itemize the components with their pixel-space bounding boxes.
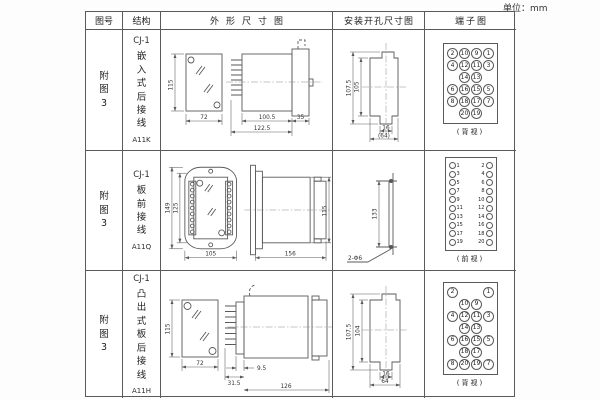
- terminal-circle: 4: [447, 311, 458, 322]
- terminal-circle: 6: [447, 335, 458, 346]
- fig-no-cell-a11h: 附图3: [86, 271, 123, 398]
- terminal-circle: 14: [459, 323, 470, 334]
- structure-code: A11K: [132, 136, 150, 144]
- dim-total-width: (64): [378, 134, 390, 140]
- terminal-number: 6: [480, 180, 485, 186]
- terminal-view-label: (前视): [457, 254, 484, 264]
- install-drawing-a11q: 133 2-Φ6: [334, 151, 424, 271]
- install-drawing-a11k: 107.5 105 16 (64): [334, 30, 424, 150]
- cutout-profile: [362, 286, 408, 380]
- terminal-circle: 20: [459, 108, 470, 119]
- model-label: CJ-1: [133, 274, 150, 284]
- terminal-circle: 8: [447, 96, 458, 107]
- dim-front-width: 72: [200, 115, 208, 121]
- dim-outer-height: 107.5: [346, 323, 352, 340]
- dimensions: 107.5 105 16 (64): [346, 52, 398, 142]
- dimensions: 133 2-Φ6: [348, 181, 379, 262]
- terminal-circle: 4: [447, 60, 458, 71]
- terminal-grid-front-view: 1234567891011121314151617181920: [445, 157, 497, 251]
- terminal-spacer: [447, 347, 458, 358]
- terminal-number: 3: [456, 171, 461, 177]
- terminal-circle: 13: [471, 72, 482, 83]
- holes-callout: 2-Φ6: [348, 256, 362, 262]
- structure-cell-a11k: CJ-1 嵌入式后接线 A11K: [123, 30, 161, 151]
- terminal-spacer: [483, 72, 494, 83]
- terminal-hole: [486, 239, 493, 246]
- outline-cell-a11q: 149 125 105 156 115: [161, 151, 333, 271]
- terminal-number: 9: [456, 197, 461, 203]
- terminal-circle: 11: [471, 60, 482, 71]
- terminal-circle: 19: [471, 359, 482, 370]
- terminal-grid-back-view: 2109141211314136161558181772019: [443, 43, 498, 124]
- terminal-hole: [449, 171, 456, 178]
- dim-total-length: 122.5: [253, 126, 270, 132]
- terminal-circle: 7: [483, 96, 494, 107]
- terminal-circle: 15: [471, 84, 482, 95]
- terminal-number: 15: [456, 222, 464, 228]
- structure-code: A11Q: [132, 243, 151, 251]
- dim-outer-height: 107.5: [346, 79, 352, 96]
- terminal-circle: 16: [459, 84, 470, 95]
- terminal-circle: 12: [459, 311, 470, 322]
- terminal-circle: 5: [483, 84, 494, 95]
- terminal-hole: [486, 213, 493, 220]
- dim-inner-height: 105: [354, 81, 360, 92]
- outline-drawing-a11h: 115 72 9.5 31.5 126: [162, 272, 332, 398]
- terminal-number: 5: [456, 180, 461, 186]
- terminal-circle: 9: [471, 48, 482, 59]
- dim-front-height: 115: [165, 323, 171, 334]
- cutout-profile: [362, 43, 406, 134]
- dim-flange: 35: [296, 115, 304, 121]
- terminal-number: 7: [456, 188, 461, 194]
- terminal-number: 18: [477, 231, 485, 237]
- terminal-number: 19: [456, 239, 464, 245]
- terminal-hole: [449, 162, 456, 169]
- dimensions: 115 72 9.5 31.5 126: [165, 300, 329, 393]
- structure-code: A11H: [132, 387, 151, 395]
- structure-cell-a11h: CJ-1 凸出式板后接线 A11H: [123, 271, 161, 398]
- install-cell-a11k: 107.5 105 16 (64): [333, 30, 425, 151]
- dim-side-height: 115: [323, 205, 329, 216]
- terminal-circle: 17: [471, 347, 482, 358]
- side-view: [225, 285, 332, 360]
- terminal-grid-back-view: 2110941211314136161551817820197: [443, 282, 498, 375]
- fig-no-label: 附图3: [99, 70, 110, 110]
- fig-no-label: 附图3: [99, 190, 110, 230]
- terminal-circle: 9: [471, 299, 482, 310]
- fig-no-label: 附图3: [99, 314, 110, 354]
- terminal-circle: 11: [471, 311, 482, 322]
- dim-body-length: 126: [280, 384, 291, 390]
- dim-hole-pitch: 133: [372, 208, 378, 219]
- terminal-number: 13: [456, 214, 464, 220]
- terminal-circle: 1: [483, 287, 494, 298]
- dim-total-width: 64: [381, 379, 389, 385]
- outline-cell-a11h: 115 72 9.5 31.5 126: [161, 271, 333, 398]
- terminal-view-label: (背视): [457, 378, 484, 388]
- terminal-view-label: (背视): [457, 127, 484, 137]
- terminal-spacer: [447, 299, 458, 310]
- terminal-number: 1: [456, 163, 461, 169]
- model-label: CJ-1: [133, 170, 150, 180]
- terminal-hole: [486, 171, 493, 178]
- terminal-circle: 16: [459, 335, 470, 346]
- terminal-number: 2: [480, 163, 485, 169]
- terminal-circle: 13: [471, 323, 482, 334]
- terminal-hole: [486, 162, 493, 169]
- side-view: [226, 40, 323, 116]
- install-cell-a11q: 133 2-Φ6: [333, 151, 425, 271]
- fig-no-cell-a11k: 附图3: [86, 30, 123, 151]
- terminal-hole: [449, 239, 456, 246]
- spec-table: 图号 结构 外形尺寸图 安装开孔尺寸图 端子图 附图3 CJ-1 嵌入式后接线 …: [85, 11, 515, 397]
- structure-label: 凸出式板后接线: [136, 288, 147, 382]
- terminal-circle: 2: [447, 48, 458, 59]
- header-install: 安装开孔尺寸图: [333, 12, 425, 30]
- front-view: [185, 167, 237, 249]
- terminal-number: 11: [456, 205, 464, 211]
- terminal-circle: 14: [459, 72, 470, 83]
- terminal-number: 16: [477, 222, 485, 228]
- front-view: [182, 300, 218, 357]
- terminal-circle: 12: [459, 60, 470, 71]
- terminal-circle: 19: [471, 108, 482, 119]
- structure-label: 板前接线: [136, 184, 147, 238]
- terminal-hole: [486, 188, 493, 195]
- dimensions: 107.5 104 16 64: [346, 294, 400, 388]
- outline-drawing-a11k: 115 72 100.5 35 122.5: [162, 30, 332, 150]
- terminal-hole: [486, 230, 493, 237]
- dim-pin-section: 31.5: [227, 381, 240, 387]
- header-fig-no: 图号: [86, 12, 123, 30]
- terminal-circle: 1: [483, 48, 494, 59]
- terminal-number: 8: [480, 188, 485, 194]
- terminal-spacer: [483, 108, 494, 119]
- install-drawing-a11h: 107.5 104 16 64: [334, 272, 424, 398]
- terminal-hole: [486, 179, 493, 186]
- terminal-spacer: [483, 323, 494, 334]
- terminal-spacer: [483, 299, 494, 310]
- terminal-number: 14: [477, 214, 485, 220]
- dim-slot-width: 16: [382, 371, 390, 377]
- terminal-strip-circles: [190, 182, 231, 233]
- terminal-hole: [449, 222, 456, 229]
- dim-inner-height: 104: [355, 325, 361, 336]
- dim-body-length: 100.5: [258, 115, 275, 121]
- terminal-circle: 10: [459, 299, 470, 310]
- terminal-number: 4: [480, 171, 485, 177]
- structure-label: 嵌入式后接线: [136, 50, 147, 131]
- terminal-spacer: [483, 347, 494, 358]
- terminal-number: 17: [456, 231, 464, 237]
- terminal-spacer: [447, 108, 458, 119]
- terminal-number: 10: [477, 197, 485, 203]
- header-outline: 外形尺寸图: [161, 12, 333, 30]
- terminal-spacer: [459, 287, 470, 298]
- terminal-circle: 20: [459, 359, 470, 370]
- terminal-circle: 5: [483, 335, 494, 346]
- header-terminal: 端子图: [425, 12, 516, 30]
- terminal-hole: [449, 188, 456, 195]
- terminal-number: 12: [477, 205, 485, 211]
- datasheet-page: { "unit_label": "单位：mm", "line_color": "…: [0, 0, 600, 400]
- outline-drawing-a11q: 149 125 105 156 115: [161, 151, 332, 271]
- terminal-circle: 15: [471, 335, 482, 346]
- terminal-circle: 18: [459, 96, 470, 107]
- structure-cell-a11q: CJ-1 板前接线 A11Q: [123, 151, 161, 271]
- dim-front-width: 72: [196, 361, 204, 367]
- terminal-cell-a11q: 1234567891011121314151617181920 (前视): [425, 151, 516, 271]
- terminal-hole: [449, 230, 456, 237]
- dim-inner-height: 125: [173, 202, 179, 213]
- terminal-hole: [486, 222, 493, 229]
- dim-slot-width: 16: [382, 126, 390, 132]
- terminal-cell-a11h: 2110941211314136161551817820197 (背视): [425, 271, 516, 398]
- terminal-circle: 17: [471, 96, 482, 107]
- terminal-circle: 3: [483, 311, 494, 322]
- side-view: [245, 165, 331, 254]
- install-cell-a11h: 107.5 104 16 64: [333, 271, 425, 398]
- model-label: CJ-1: [133, 36, 150, 46]
- dim-front-height: 149: [165, 202, 171, 213]
- terminal-spacer: [471, 287, 482, 298]
- terminal-circle: 3: [483, 60, 494, 71]
- terminal-spacer: [447, 72, 458, 83]
- terminal-hole: [449, 205, 456, 212]
- terminal-spacer: [447, 323, 458, 334]
- terminal-circle: 2: [447, 287, 458, 298]
- terminal-hole: [449, 179, 456, 186]
- terminal-hole: [449, 196, 456, 203]
- header-structure: 结构: [123, 12, 161, 30]
- terminal-circle: 8: [447, 359, 458, 370]
- dim-side-length: 156: [285, 251, 296, 257]
- terminal-cell-a11k: 2109141211314136161558181772019 (背视): [425, 30, 516, 151]
- terminal-circle: 6: [447, 84, 458, 95]
- front-view: [186, 54, 222, 111]
- dim-front-height: 115: [168, 79, 174, 90]
- terminal-circle: 18: [459, 347, 470, 358]
- terminal-circle: 10: [459, 48, 470, 59]
- terminal-hole: [486, 196, 493, 203]
- terminal-number: 20: [477, 239, 485, 245]
- fig-no-cell-a11q: 附图3: [86, 151, 123, 271]
- terminal-circle: 7: [483, 359, 494, 370]
- dim-front-width: 105: [205, 251, 216, 257]
- dim-pin-offset: 9.5: [257, 366, 267, 372]
- terminal-hole: [449, 213, 456, 220]
- terminal-hole: [486, 205, 493, 212]
- outline-cell-a11k: 115 72 100.5 35 122.5: [161, 30, 333, 151]
